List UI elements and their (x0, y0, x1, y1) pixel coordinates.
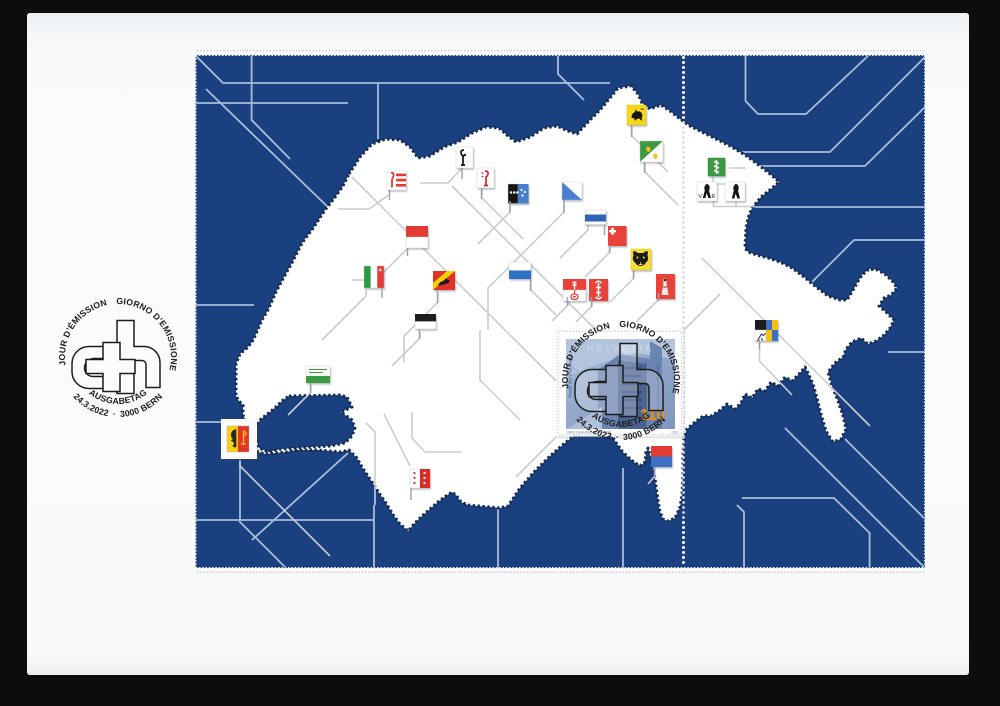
svg-text:2022: 2022 (671, 431, 679, 435)
svg-text:R: R (712, 194, 716, 200)
